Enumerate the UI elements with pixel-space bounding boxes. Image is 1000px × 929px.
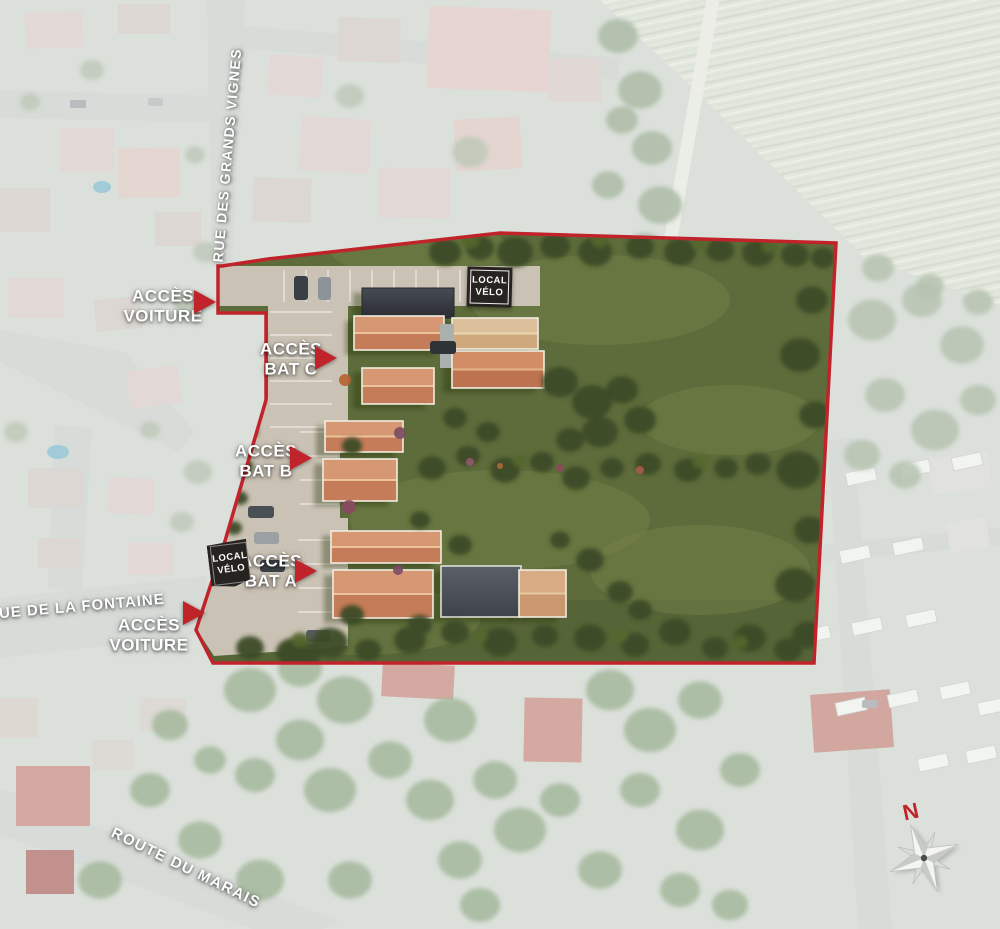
access-arrow-bat-a bbox=[295, 559, 317, 583]
site-tree-light bbox=[612, 629, 628, 643]
building-roof bbox=[323, 480, 397, 501]
flower-bush bbox=[342, 500, 356, 514]
badge-line: LOCAL bbox=[471, 275, 508, 288]
access-arrow-bat-b bbox=[290, 446, 312, 470]
flower-bush bbox=[339, 374, 351, 386]
building-roof bbox=[519, 570, 566, 594]
site-plan: N RUE DES GRANDS VIGNES RUE DE LA FONTAI… bbox=[0, 0, 1000, 929]
site-tree bbox=[796, 286, 828, 313]
access-label-line: VOITURE bbox=[123, 307, 202, 327]
site-tree bbox=[542, 367, 578, 398]
car bbox=[430, 341, 456, 354]
site-tree bbox=[659, 618, 691, 645]
building-roof bbox=[452, 351, 544, 370]
site-tree bbox=[780, 338, 820, 372]
flower-bush bbox=[466, 458, 474, 466]
local-velo-badge-bottom: LOCAL VÉLO bbox=[206, 539, 251, 590]
site-tree bbox=[706, 238, 734, 262]
building-roof bbox=[362, 368, 434, 386]
site-tree bbox=[355, 639, 381, 661]
site-tree bbox=[540, 233, 570, 259]
building-roof bbox=[323, 459, 397, 480]
building-roof bbox=[362, 386, 434, 404]
site-tree bbox=[775, 568, 815, 602]
access-label-line: BAT C bbox=[260, 360, 322, 380]
building-roof bbox=[452, 370, 544, 389]
site-tree bbox=[607, 581, 633, 603]
site-tree bbox=[476, 422, 500, 442]
site-tree bbox=[576, 548, 604, 572]
access-label-line: ACCÈS bbox=[109, 616, 188, 636]
site-tree bbox=[530, 452, 554, 472]
site-tree bbox=[429, 238, 461, 265]
site-tree-light bbox=[472, 629, 488, 643]
access-label-voiture-top: ACCÈS VOITURE bbox=[123, 287, 202, 328]
access-arrow-voiture-bottom bbox=[183, 601, 205, 625]
site-tree-light bbox=[692, 455, 708, 469]
building-roof bbox=[333, 570, 433, 594]
access-label-line: ACCÈS bbox=[260, 340, 322, 360]
site-tree bbox=[497, 237, 533, 268]
site-tree-light bbox=[512, 453, 528, 467]
badge-frame: LOCAL VÉLO bbox=[470, 269, 510, 304]
building-roof bbox=[331, 547, 441, 563]
access-label-line: VOITURE bbox=[109, 636, 188, 656]
site-tree-light bbox=[291, 632, 309, 647]
car bbox=[254, 532, 279, 544]
site-tree bbox=[702, 637, 728, 659]
access-label-line: ACCÈS bbox=[123, 287, 202, 307]
access-label-voiture-bottom: ACCÈS VOITURE bbox=[109, 616, 188, 657]
building-roof bbox=[452, 334, 538, 350]
site-tree bbox=[236, 636, 264, 660]
building-roof bbox=[519, 594, 566, 618]
access-arrow-voiture-top bbox=[194, 290, 216, 314]
site-tree bbox=[774, 638, 802, 662]
site-tree bbox=[550, 532, 570, 549]
site-tree bbox=[600, 458, 624, 478]
site-tree-light bbox=[732, 635, 748, 649]
site-tree bbox=[340, 605, 364, 625]
building-roof bbox=[325, 421, 403, 437]
car bbox=[248, 506, 274, 518]
flower-bush bbox=[497, 463, 503, 469]
site-tree bbox=[532, 625, 558, 647]
site-tree bbox=[624, 406, 656, 433]
site-tree bbox=[483, 628, 517, 657]
flat-roof-building bbox=[441, 566, 521, 617]
building-roof bbox=[452, 318, 538, 334]
aerial-map: N bbox=[0, 0, 1000, 929]
site-tree bbox=[745, 453, 771, 475]
badge-frame: LOCAL VÉLO bbox=[210, 542, 252, 586]
site-tree bbox=[606, 376, 638, 403]
site-tree bbox=[811, 248, 835, 268]
access-label-line: ACCÈS bbox=[235, 442, 297, 462]
site-tree bbox=[441, 620, 469, 644]
flower-bush bbox=[393, 565, 403, 575]
site-tree bbox=[410, 512, 430, 529]
access-label-bat-c: ACCÈS BAT C bbox=[260, 340, 322, 381]
site-tree bbox=[582, 417, 618, 448]
access-label-line: BAT B bbox=[235, 462, 297, 482]
site-tree bbox=[572, 385, 612, 419]
building-roof bbox=[331, 531, 441, 547]
grass-patch bbox=[640, 385, 820, 455]
site-tree bbox=[556, 428, 584, 452]
local-velo-badge-top: LOCAL VÉLO bbox=[466, 266, 512, 307]
access-label-bat-b: ACCÈS BAT B bbox=[235, 442, 297, 483]
garage-building bbox=[362, 288, 454, 318]
car bbox=[294, 276, 308, 300]
site-tree bbox=[562, 466, 590, 490]
site-tree bbox=[342, 438, 362, 455]
flower-bush bbox=[394, 427, 406, 439]
site-tree bbox=[781, 460, 805, 480]
badge-line: VÉLO bbox=[471, 287, 508, 300]
site-tree bbox=[418, 456, 446, 480]
site-tree bbox=[408, 615, 432, 635]
site-tree bbox=[448, 535, 472, 555]
site-tree bbox=[781, 243, 809, 267]
site-tree bbox=[574, 624, 606, 651]
flower-bush bbox=[636, 466, 644, 474]
site-tree bbox=[443, 408, 467, 428]
site-tree bbox=[714, 458, 738, 478]
car bbox=[318, 277, 331, 300]
building-roof bbox=[325, 437, 403, 453]
flower-bush bbox=[556, 464, 564, 472]
site-tree bbox=[628, 600, 652, 620]
access-arrow-bat-c bbox=[315, 346, 337, 370]
building-roof bbox=[354, 316, 444, 333]
